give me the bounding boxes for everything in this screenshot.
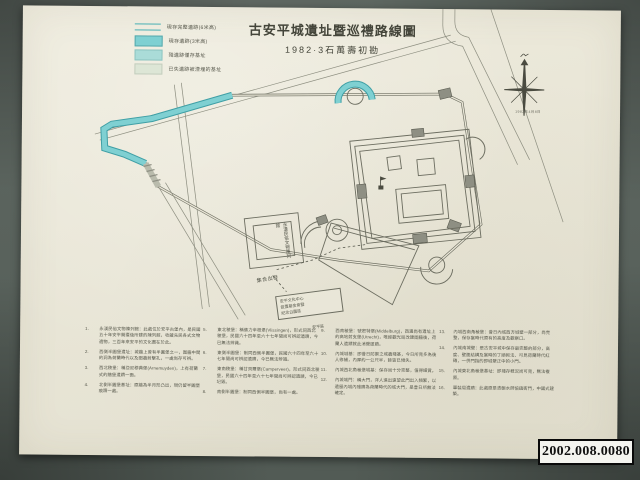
note-item: 5. 東北稜堡：稱佛力辛根堡(Vlissingen)，形式同西北稜堡，民國六十四… bbox=[210, 327, 320, 347]
preserved-wall-teal bbox=[104, 94, 233, 164]
legend-swatch-icon bbox=[135, 35, 163, 46]
note-item: 13. 內城西南角稜堡：昔日內城西方城壁一部分，尚完整，保存當時代原有的高度及觀… bbox=[446, 329, 556, 343]
note-item: 3. 西北稜堡：稱亞尼穆典堡(Arnemuyden)，上有荷蘭式的牆堡遺蹟一面。 bbox=[92, 365, 202, 379]
note-item: 4. 北側半圓堡基址：原牆為半月形凸出，現仍留半圓堡痕蹟一處。 bbox=[92, 382, 202, 396]
map-sheet: 現存完整遺跡(6米高)現存遺跡(3米高)殘遺跡僅存基址已失遺跡被湮埋的基址 古安… bbox=[19, 5, 621, 459]
notes-section: 1. 永漢民俗文物陳列館：此處位於安平古堡內，是民國五十年安平開臺後所建的陳列館… bbox=[92, 326, 563, 402]
notes-column: 13. 內城西南角稜堡：昔日內城西方城壁一部分，尚完整，保存當時代原有的高度及觀… bbox=[446, 329, 557, 402]
note-item: 15. 內城東北角稜堡基址：即殘存概況尚可見，無法複原。 bbox=[446, 368, 556, 382]
note-item: 7. 東南稜堡：稱甘貝爾堡(Camperveer)，形式同西北稜堡，民國六十四年… bbox=[210, 366, 320, 386]
map-title: 古安平城遺址暨巡禮路線圖 bbox=[228, 19, 438, 40]
round-bastions bbox=[301, 214, 454, 284]
notes-column: 9. 西南稜堡：號密特堡(Middelburg)，西邊尚有遺址上的高地射支堡(U… bbox=[328, 328, 439, 401]
flag-marker bbox=[378, 177, 386, 190]
legend-swatch-icon bbox=[134, 63, 162, 74]
note-item: 6. 東側半圓堡：制同西側半圓堡，民國六十四年至六十七年間尚可辨認遺蹟，今已無法… bbox=[210, 350, 320, 364]
fort-buildings bbox=[386, 156, 449, 224]
notes-column: 1. 永漢民俗文物陳列館：此處位於安平古堡內，是民國五十年安平開臺後所建的陳列館… bbox=[92, 326, 203, 399]
note-item: 9. 西南稜堡：號密特堡(Middelburg)，西邊尚有遺址上的高地射支堡(U… bbox=[328, 328, 438, 348]
legend-label: 現存完整遺跡(6米高) bbox=[167, 24, 216, 31]
catalog-number-label: 2002.008.0080 bbox=[538, 439, 634, 465]
map-subtitle: 1982·3石萬壽初勘 bbox=[228, 42, 438, 57]
note-item: 8. 南側半圓堡：制同西側半圓堡，尚有一處。 bbox=[210, 389, 320, 396]
legend-label: 現存遺跡(3米高) bbox=[169, 38, 208, 45]
note-item: 14. 內城南城壁：是古安平城中保存最完整的部分，高度、壁面結構及當時的丁順砌法… bbox=[446, 345, 556, 365]
note-item: 2. 西側半圓堡遺址：城牆上曾有半圓堡之一，圍牆中間的洞為荷蘭時代以及圍牆射擊孔… bbox=[92, 349, 202, 363]
title-block: 古安平城遺址暨巡禮路線圖 1982·3石萬壽初勘 bbox=[228, 19, 438, 57]
legend-swatch-icon bbox=[135, 23, 161, 30]
note-item: 12. 內城城門：稱大門，洋人進出遠望此門出入頻繁，以遺留內城內殘蹟為荷蘭時代的… bbox=[328, 377, 438, 397]
compass-rose-icon bbox=[496, 54, 553, 126]
note-item: 1. 永漢民俗文物陳列館：此處位於安平古堡內，是民國五十年安平開臺後所建的陳列館… bbox=[92, 326, 202, 346]
legend-label: 殘遺跡僅存基址 bbox=[169, 52, 206, 59]
compass-date-note: 1982年4月8日 bbox=[488, 109, 568, 115]
notes-column: 5. 東北稜堡：稱佛力辛根堡(Vlissingen)，形式同西北稜堡，民國六十四… bbox=[210, 327, 321, 400]
ruined-wall-hatch bbox=[143, 163, 160, 186]
legend-label: 已失遺跡被湮埋的基址 bbox=[168, 66, 221, 73]
legend-swatch-icon bbox=[134, 49, 162, 60]
note-item: 11. 內城西北角稜堡城基：保存尚十分完整，值得細賞。 bbox=[328, 367, 438, 374]
note-item: 10. 內城城基：即昔日防禦之城牆殘基，今日所見多為後人修補，內厚約一公尺半，餘… bbox=[328, 351, 438, 365]
note-item: 16. 軍裝局遺蹟：此處原是清朝水師協鎮衙門，中國式建築。 bbox=[446, 385, 556, 399]
inner-fort-walls bbox=[349, 128, 482, 250]
museum-label: 永漢民俗文物陳列館 bbox=[257, 222, 293, 261]
streets-lower-left bbox=[157, 183, 246, 320]
legend-row: 已失遺跡被湮埋的基址 bbox=[134, 62, 284, 76]
